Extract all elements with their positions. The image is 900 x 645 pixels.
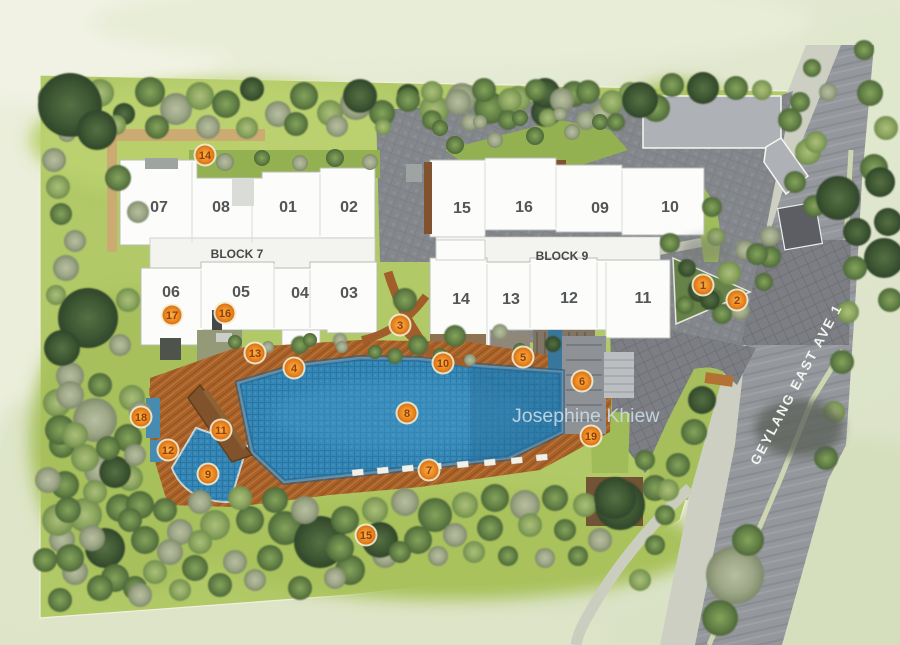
svg-text:15: 15 [360, 530, 372, 542]
svg-text:18: 18 [135, 412, 147, 424]
svg-text:11: 11 [215, 425, 227, 437]
svg-text:7: 7 [426, 465, 432, 477]
svg-text:8: 8 [404, 408, 410, 420]
svg-text:9: 9 [205, 469, 211, 481]
svg-text:1: 1 [700, 280, 706, 292]
svg-text:5: 5 [520, 352, 526, 364]
svg-text:4: 4 [291, 363, 298, 375]
svg-text:2: 2 [734, 295, 740, 307]
svg-text:12: 12 [162, 445, 174, 457]
svg-text:10: 10 [437, 358, 449, 370]
svg-text:Josephine Khiew: Josephine Khiew [512, 405, 660, 427]
svg-text:6: 6 [579, 376, 585, 388]
svg-text:17: 17 [166, 310, 178, 322]
svg-text:14: 14 [199, 150, 212, 162]
svg-text:16: 16 [219, 308, 231, 320]
svg-text:3: 3 [397, 320, 403, 332]
svg-text:19: 19 [585, 431, 597, 443]
svg-text:13: 13 [249, 348, 261, 360]
